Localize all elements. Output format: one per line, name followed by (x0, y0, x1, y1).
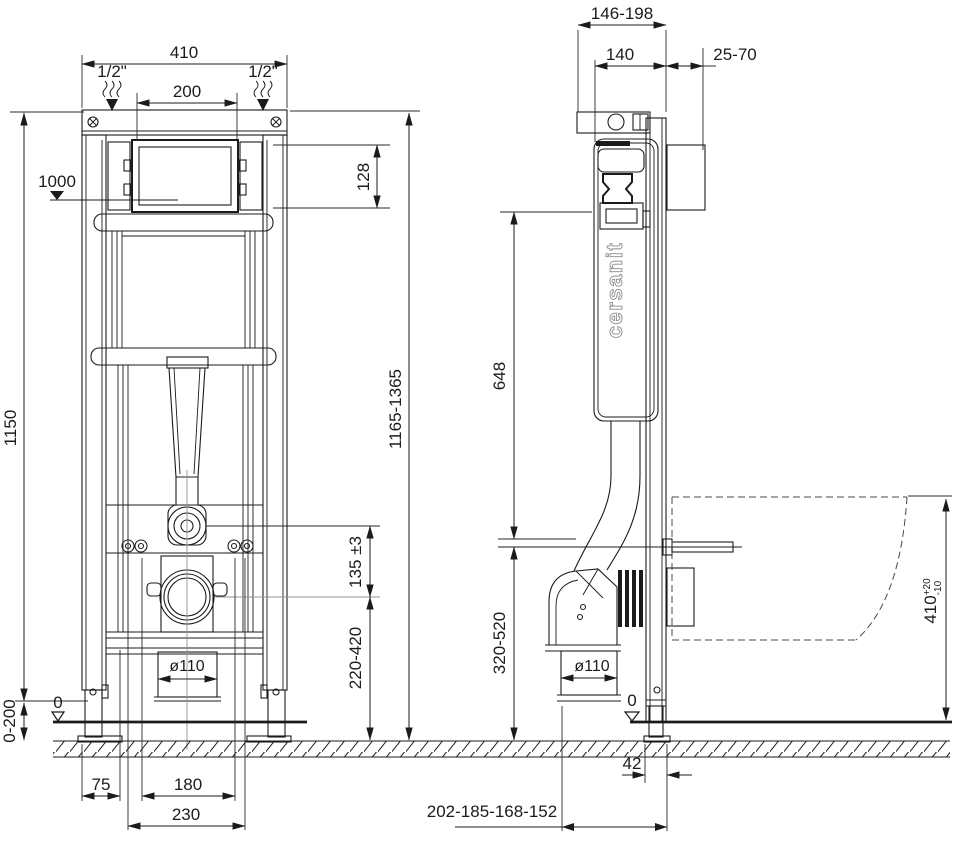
dim-floor-level-front: 0 (53, 693, 62, 712)
valve-clamp-side (603, 174, 632, 203)
dim-bowl-top-height: 410+20-10 (921, 578, 944, 624)
dim-window-height: 128 (354, 163, 373, 191)
dim-anchor-depth: 25-70 (713, 45, 756, 64)
flush-pipe-side (574, 421, 640, 571)
mounting-bolts-front (122, 540, 253, 552)
dim-inlet-right: 1/2" (248, 62, 278, 81)
water-inlet-arrow-left (103, 81, 121, 111)
floor (53, 722, 952, 757)
frame-leg-left (85, 690, 102, 737)
brand-logo: cersanit (602, 242, 627, 338)
front-view (78, 110, 291, 750)
dim-frame-height: 1150 (1, 410, 20, 447)
dimensions-front: 410 1/2" 1/2" 200 1000 1150 0-200 (0, 43, 420, 830)
cistern-lid-strip (596, 141, 630, 146)
installation-diagram: cersanit (0, 0, 960, 844)
dim-bolt-spacing: 180 (174, 775, 202, 794)
toilet-bowl-outline (672, 497, 907, 640)
frame-screw-right (271, 117, 281, 127)
dim-leg-offset: 42 (623, 754, 642, 773)
dim-install-height: 1165-1365 (386, 369, 405, 449)
dim-outlet-height-front: 220-420 (346, 627, 365, 689)
dim-frame-depth: 140 (606, 45, 634, 64)
dim-outlet-height-side: 320-520 (490, 612, 509, 674)
fill-valve-side (598, 149, 644, 172)
dimensions-side: 146-198 140 25-70 648 320-520 ø110 0 42 (427, 4, 952, 831)
dim-supply-level: 1000 (38, 172, 76, 191)
dim-outlet-distances: 202-185-168-152 (427, 802, 557, 821)
outlet-sleeve-side (667, 568, 694, 626)
dim-leg-adjustment: 0-200 (0, 699, 19, 742)
dim-depth-range: 146-198 (591, 4, 653, 23)
dim-drain-diameter-front: ø110 (169, 658, 204, 675)
window-clamp-right (240, 142, 262, 210)
dim-floor-level-side: 0 (627, 691, 636, 710)
dim-foot-offset: 75 (92, 775, 111, 794)
dim-inlet-to-outlet: 135 ±3 (346, 536, 365, 588)
flush-access-window (108, 140, 262, 212)
frame-screw-left (88, 117, 98, 127)
technical-drawing-page: cersanit (0, 0, 960, 844)
dim-inlet-left: 1/2" (97, 62, 127, 81)
frame-leg-right (268, 690, 285, 737)
dim-window-width: 200 (173, 82, 201, 101)
cistern-front (91, 214, 276, 654)
dim-fixing-spacing: 230 (172, 805, 200, 824)
dim-frame-width: 410 (170, 43, 198, 62)
frame-rail-side (644, 118, 670, 742)
dim-drain-diameter-side: ø110 (574, 658, 609, 675)
dim-tank-height: 648 (490, 362, 509, 390)
water-inlet-arrow-right (254, 81, 272, 111)
top-bracket-side (577, 112, 650, 133)
flush-pipe-front (167, 357, 208, 505)
side-view: cersanit (545, 112, 907, 742)
wall-anchor-rod (667, 145, 705, 210)
